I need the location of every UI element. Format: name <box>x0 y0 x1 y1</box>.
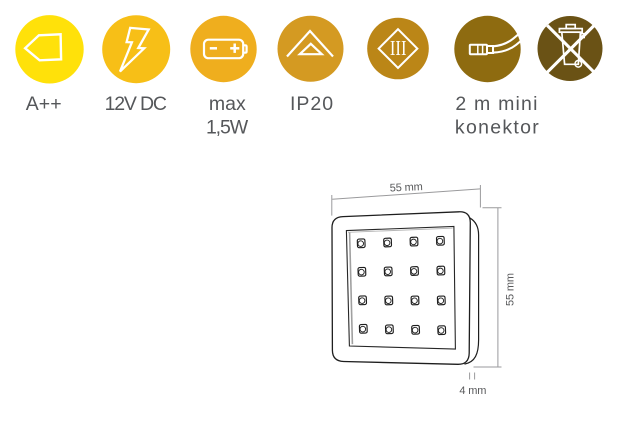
svg-text:max: max <box>209 93 246 115</box>
svg-text:55 mm: 55 mm <box>389 181 422 194</box>
svg-text:III: III <box>390 37 407 60</box>
svg-text:55 mm: 55 mm <box>505 273 517 306</box>
svg-text:konektor: konektor <box>455 116 540 138</box>
svg-text:4 mm: 4 mm <box>459 385 486 397</box>
svg-text:2 m mini: 2 m mini <box>455 93 538 115</box>
svg-text:IP20: IP20 <box>290 93 334 115</box>
svg-text:12V DC: 12V DC <box>105 93 167 115</box>
svg-text:1,5W: 1,5W <box>206 116 249 138</box>
svg-text:A++: A++ <box>26 93 62 115</box>
